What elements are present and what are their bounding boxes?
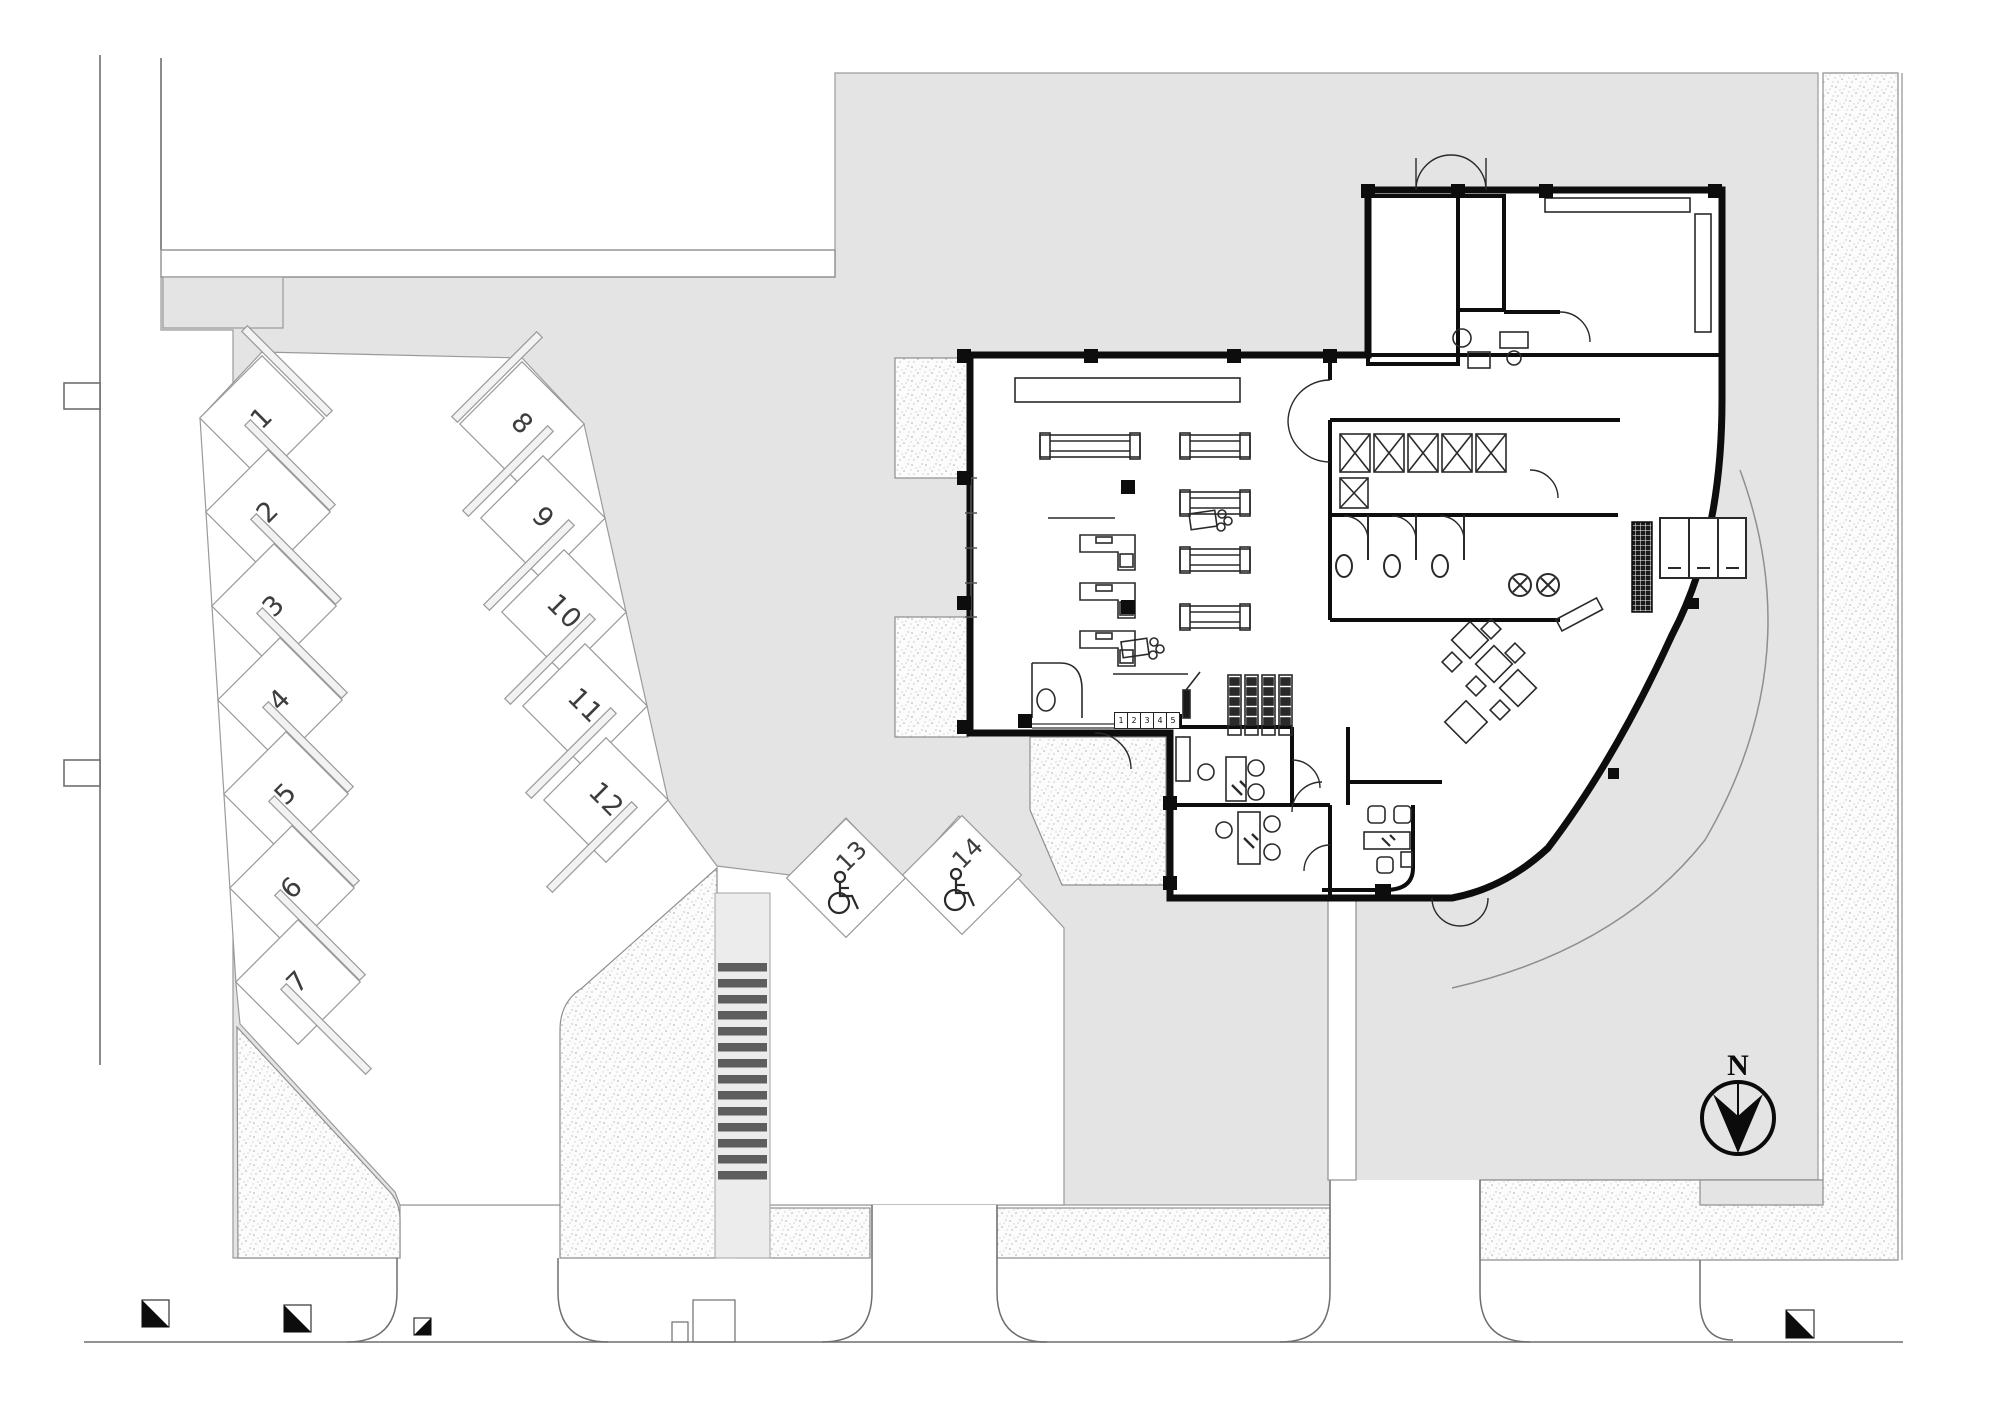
- checkout-lane-number: 4: [1153, 712, 1167, 729]
- survey-marker-icon: [414, 1318, 431, 1335]
- checkout-lane-number: 2: [1127, 712, 1141, 729]
- survey-marker-icon: [1786, 1310, 1814, 1338]
- checkout-lane-numbers: 1 2 3 4 5: [1115, 712, 1180, 729]
- pavement-pad: [163, 277, 283, 328]
- site-plan-canvas: 1 2 3 4 5 6 7 8 9 10 11 12 13 14 N 1 2 3…: [0, 0, 2000, 1422]
- utility-enclosure: [1660, 518, 1746, 578]
- pad-in-planting: [1700, 1180, 1823, 1205]
- entrance-walkway: [1328, 898, 1356, 1180]
- property-lines: [64, 55, 161, 1065]
- survey-marker-icon: [284, 1305, 311, 1332]
- planting-bed-west-lower: [895, 617, 968, 737]
- site-plan-drawing: [0, 0, 2000, 1422]
- planting-strip-b: [997, 1208, 1330, 1258]
- road-band: [161, 250, 835, 277]
- survey-marker-icon: [64, 760, 100, 786]
- planting-bed-west-upper: [895, 358, 968, 478]
- checkout-lane-number: 1: [1114, 712, 1128, 729]
- north-label: N: [1727, 1049, 1749, 1083]
- checkout-lane-number: 3: [1140, 712, 1154, 729]
- service-shaft: [1632, 522, 1652, 612]
- survey-marker-icon: [142, 1300, 169, 1327]
- survey-marker-icon: [64, 383, 100, 409]
- crosswalk: [715, 893, 770, 1258]
- checkout-lane-number: 5: [1166, 712, 1180, 729]
